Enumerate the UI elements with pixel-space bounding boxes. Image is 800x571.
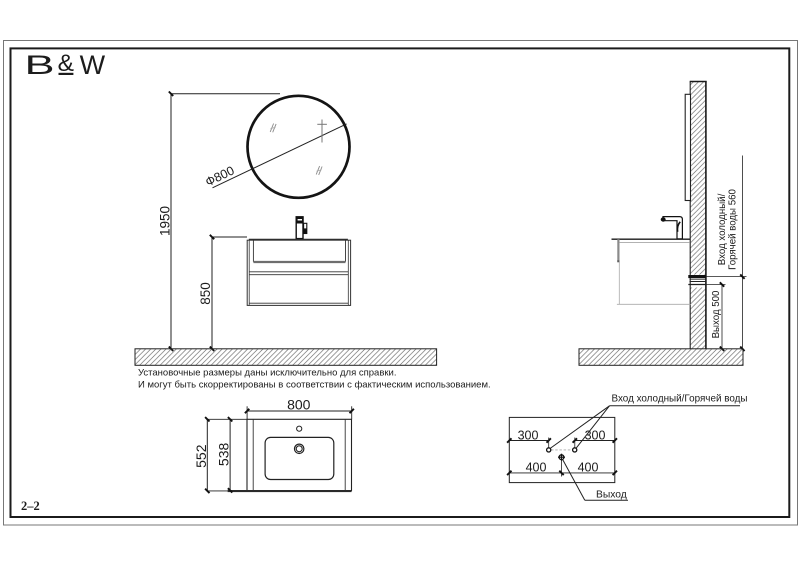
svg-text:И могут быть скорректированы в: И могут быть скорректированы в соответст… xyxy=(138,379,491,390)
svg-text:B: B xyxy=(25,49,55,80)
svg-text:400: 400 xyxy=(578,461,599,475)
svg-text:538: 538 xyxy=(215,443,231,467)
svg-text:Установочные размеры даны искл: Установочные размеры даны исключительно … xyxy=(138,368,396,379)
svg-text:1950: 1950 xyxy=(157,206,172,236)
svg-text:Выход 500: Выход 500 xyxy=(711,290,722,338)
svg-text:Выход: Выход xyxy=(596,490,627,501)
svg-text:Горячей воды 560: Горячей воды 560 xyxy=(728,189,739,270)
svg-text:400: 400 xyxy=(526,461,547,475)
svg-text:850: 850 xyxy=(198,282,213,305)
svg-text:300: 300 xyxy=(518,428,539,442)
svg-text:Вход холодный/Горячей воды: Вход холодный/Горячей воды xyxy=(612,393,748,404)
svg-text:2–2: 2–2 xyxy=(21,499,40,513)
svg-text:300: 300 xyxy=(585,428,606,442)
svg-text:552: 552 xyxy=(193,444,209,468)
svg-text:800: 800 xyxy=(287,397,311,413)
svg-text:Вход холодный/: Вход холодный/ xyxy=(717,193,728,265)
svg-text:W: W xyxy=(80,50,106,80)
